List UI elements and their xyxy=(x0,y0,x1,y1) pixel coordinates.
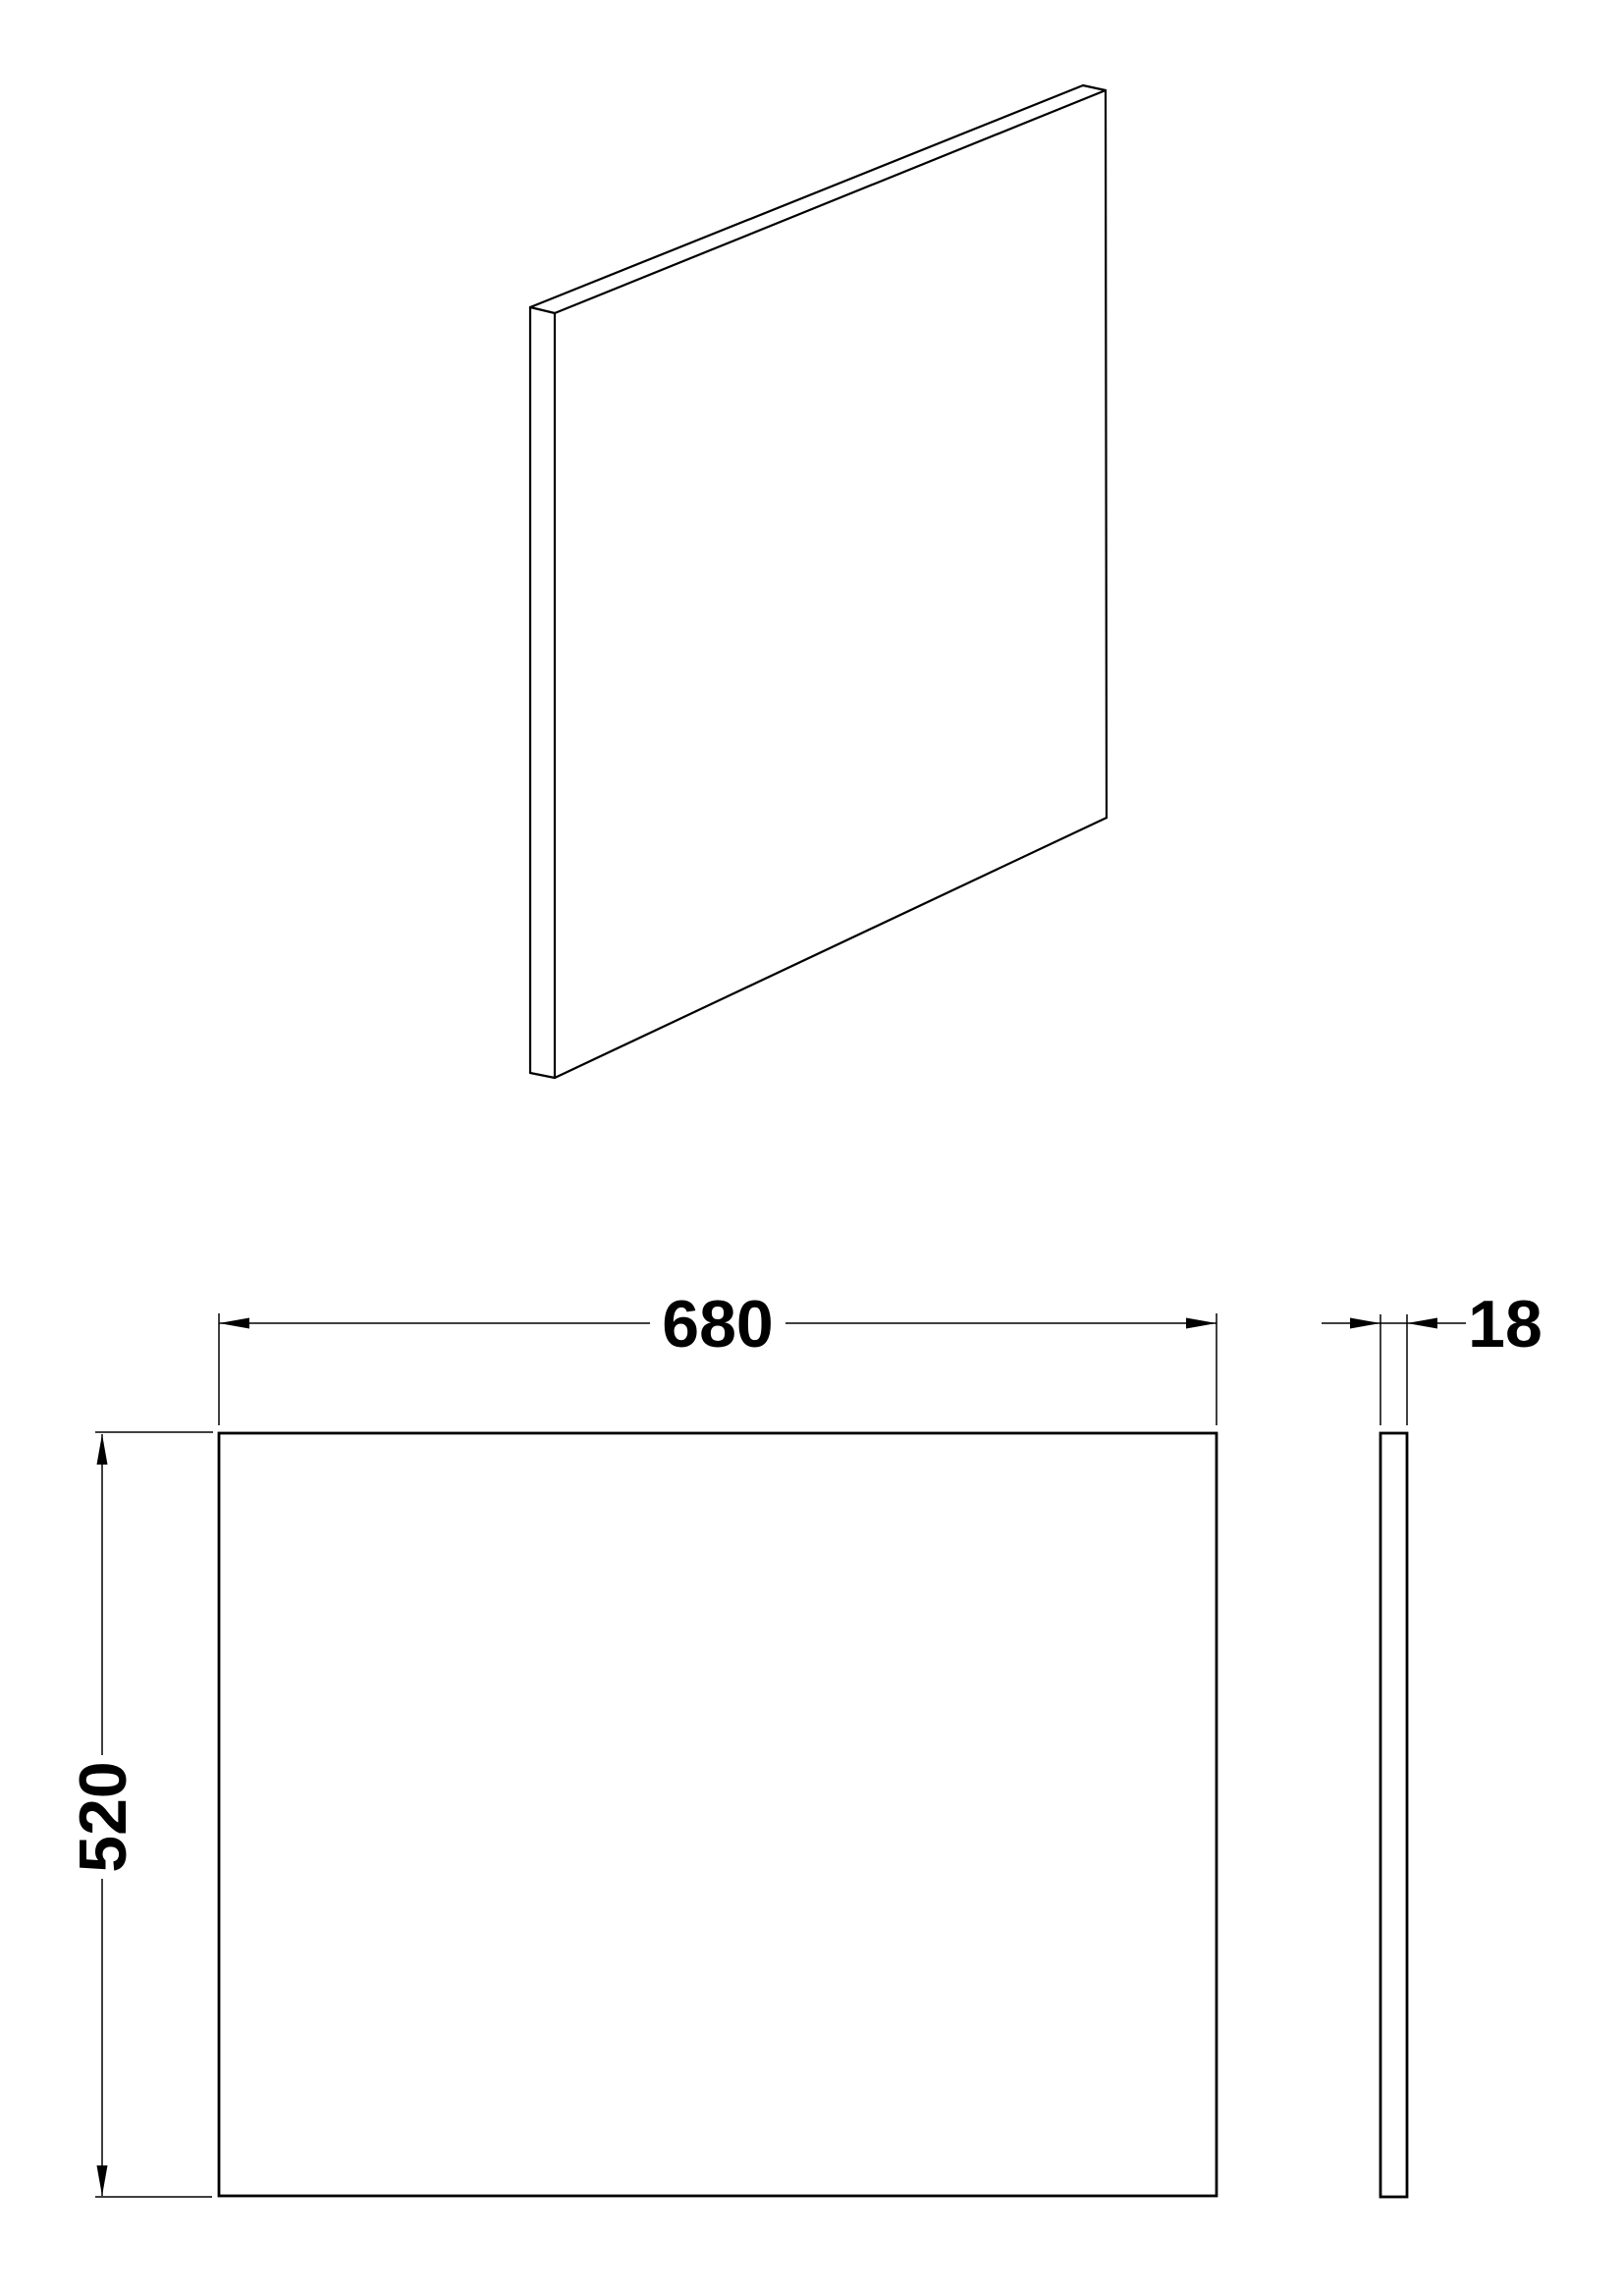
height-dimension: 520 xyxy=(66,1432,213,2197)
panel-front-top-edge xyxy=(555,90,1106,313)
perspective-view xyxy=(530,85,1107,1078)
width-dimension-label: 680 xyxy=(662,1287,773,1362)
panel-top-left-thickness-edge xyxy=(530,307,555,313)
panel-bottom-edge xyxy=(555,818,1107,1078)
panel-right-edge xyxy=(1106,90,1107,818)
thickness-arrow-left-icon xyxy=(1350,1318,1380,1329)
width-arrow-right-icon xyxy=(1186,1318,1217,1329)
panel-top-right-thickness-edge xyxy=(1083,85,1106,90)
thickness-dimension: 18 xyxy=(1322,1287,1542,1425)
height-arrow-down-icon xyxy=(97,2165,108,2196)
panel-bottom-left-thickness-edge xyxy=(530,1073,555,1078)
technical-drawing-page: 680 520 18 xyxy=(0,0,1623,2296)
side-view xyxy=(1380,1433,1407,2197)
height-dimension-label: 520 xyxy=(66,1761,140,1872)
thickness-arrow-right-icon xyxy=(1407,1318,1437,1329)
width-arrow-left-icon xyxy=(219,1318,249,1329)
side-view-outline xyxy=(1380,1433,1407,2197)
thickness-dimension-label: 18 xyxy=(1468,1287,1542,1362)
height-arrow-up-icon xyxy=(97,1434,108,1465)
front-view xyxy=(219,1433,1217,2196)
panel-back-top-edge xyxy=(530,85,1083,307)
panel-dimension-drawing: 680 520 18 xyxy=(0,0,1623,2296)
front-view-outline xyxy=(219,1433,1217,2196)
width-dimension: 680 xyxy=(219,1287,1217,1425)
